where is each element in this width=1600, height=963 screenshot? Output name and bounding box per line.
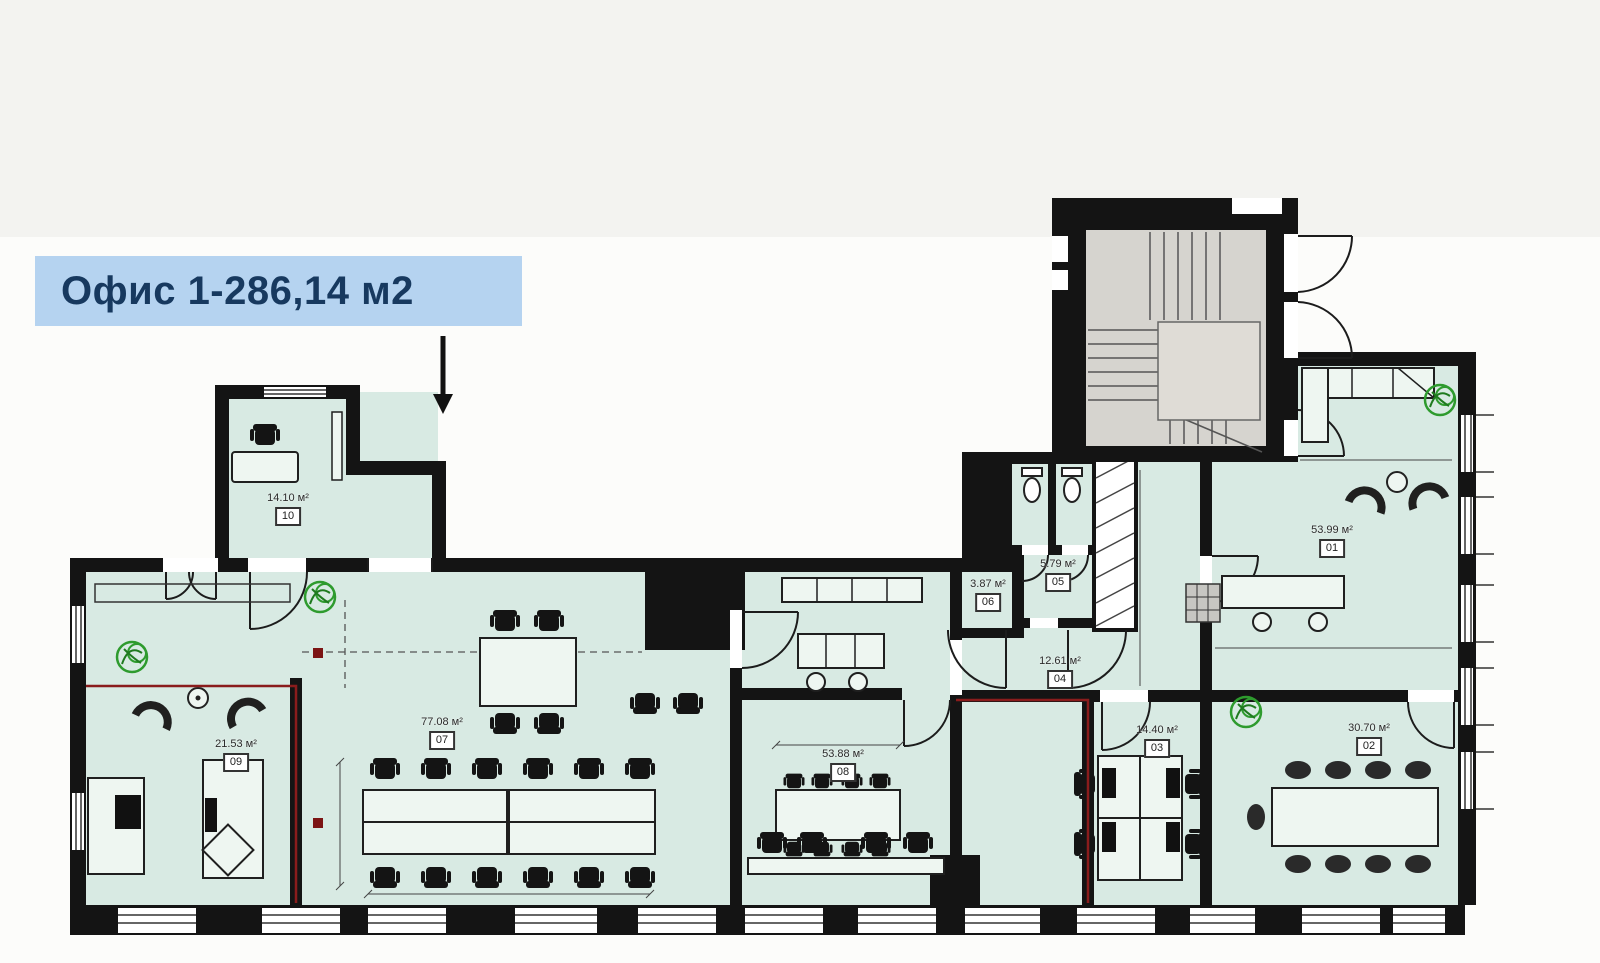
stool-icon — [1309, 613, 1327, 631]
bench-desk — [748, 858, 944, 874]
toilet-icon — [1062, 468, 1082, 502]
fire-marker-icon — [313, 648, 323, 658]
stool-icon — [1253, 613, 1271, 631]
credenza — [1222, 576, 1344, 608]
floor-plan-svg — [0, 0, 1600, 963]
copier — [1186, 584, 1220, 622]
riser-shaft — [1094, 452, 1136, 630]
stool-icon — [807, 673, 825, 691]
kitchen-island — [798, 634, 884, 668]
meeting-table — [1272, 788, 1438, 846]
round-table-icon — [1387, 472, 1407, 492]
toilet-icon — [1022, 468, 1042, 502]
stairwell — [1052, 198, 1298, 462]
stair-landing — [1158, 322, 1260, 420]
stool-icon — [849, 673, 867, 691]
fire-marker-icon — [313, 818, 323, 828]
monitor-icon — [115, 795, 141, 829]
meeting-table — [480, 638, 576, 706]
monitor-icon — [205, 798, 217, 832]
